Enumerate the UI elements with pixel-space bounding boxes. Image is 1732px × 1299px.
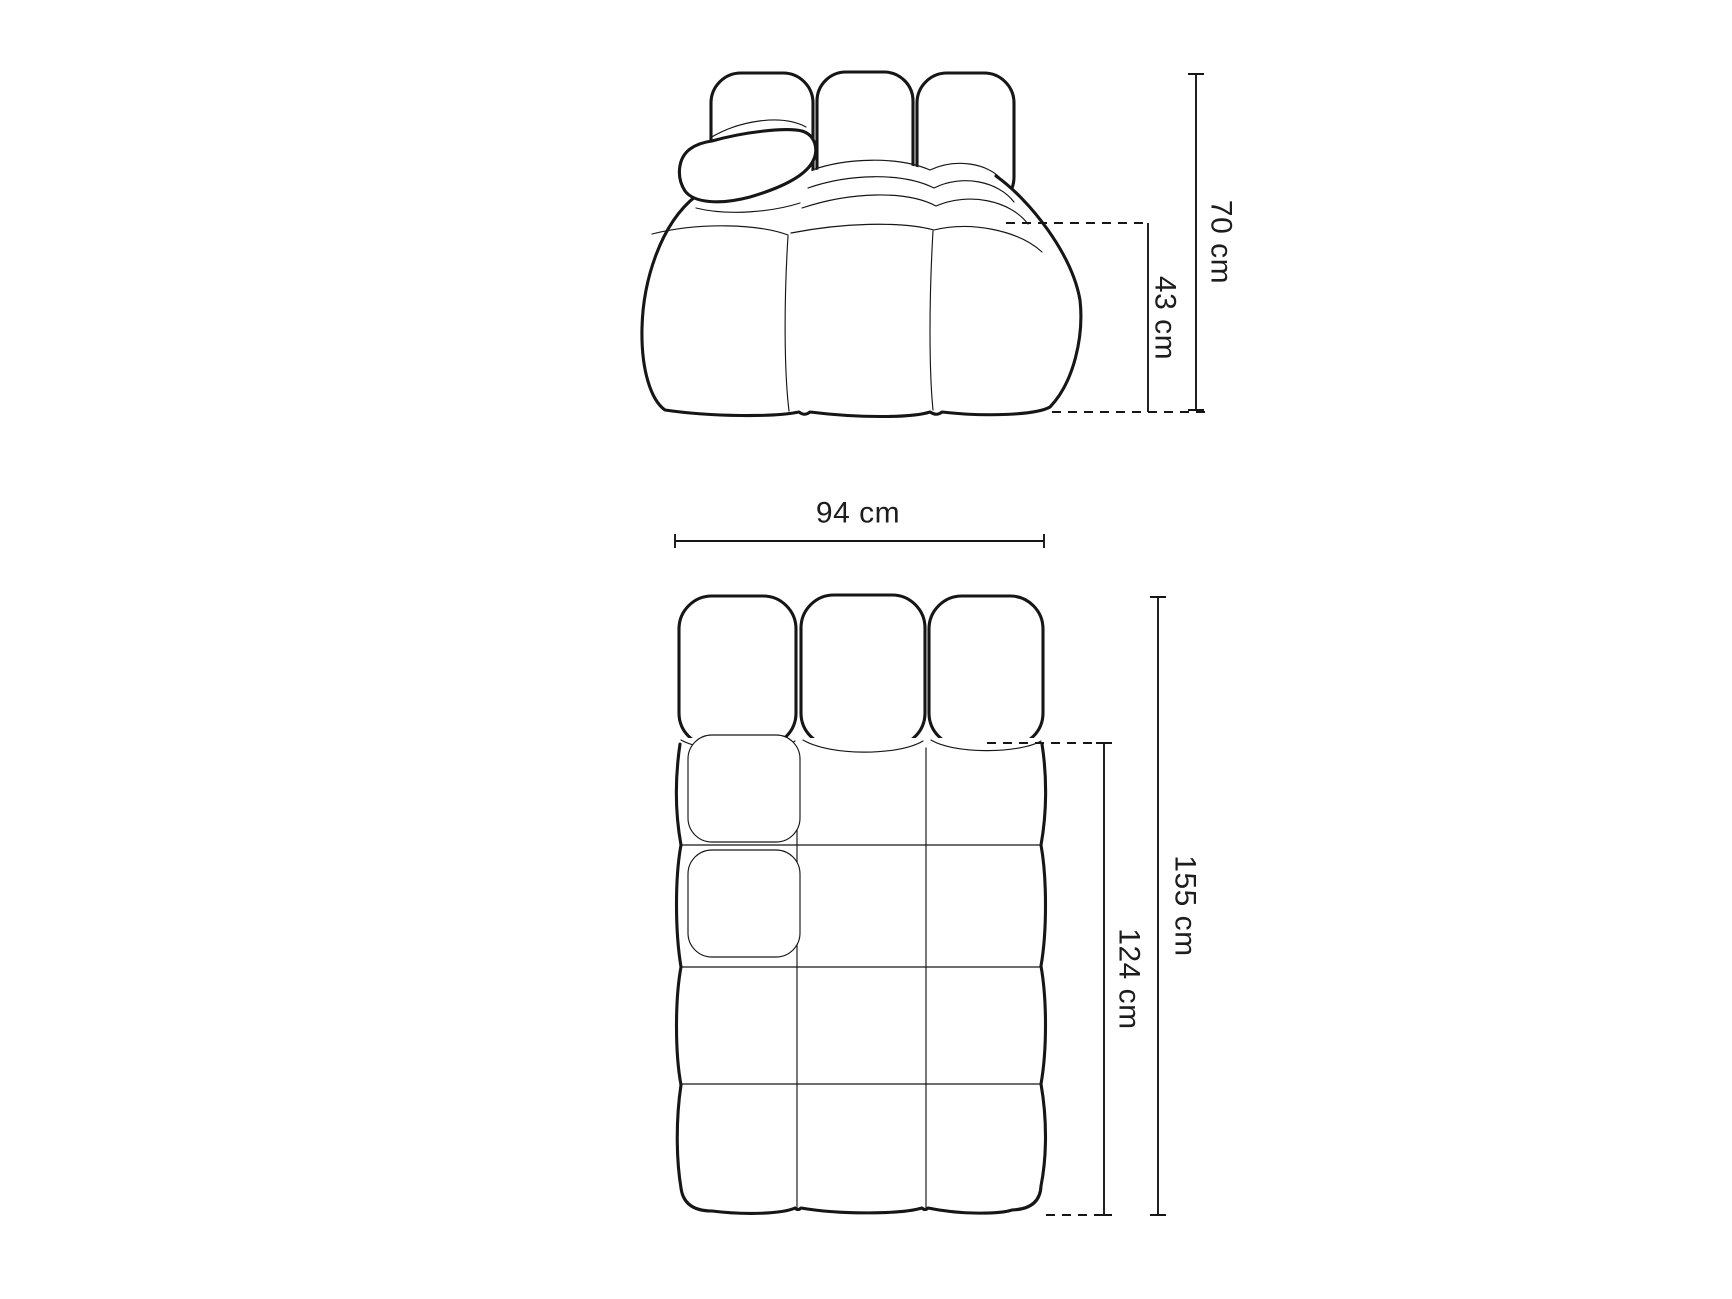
- sofa-front-view-drawing: [642, 72, 1081, 417]
- total-height-dimension-line: [1188, 74, 1204, 410]
- seat-depth-dimension-line: [1096, 743, 1112, 1215]
- dimension-label-total-height: 70 cm: [1205, 200, 1238, 284]
- dimension-label-seat-height: 43 cm: [1149, 276, 1182, 360]
- dimension-label-seat-depth: 124 cm: [1113, 928, 1146, 1029]
- top-armrest-cushion-2: [688, 850, 800, 957]
- top-backrest-cushion-right: [929, 596, 1043, 746]
- dimension-label-width: 94 cm: [816, 497, 900, 530]
- sofa-top-view-drawing: [676, 595, 1045, 1213]
- product-dimension-diagram: 70 cm 43 cm: [0, 0, 1732, 1299]
- top-armrest-cushion-1: [688, 735, 800, 842]
- top-backrest-cushion-middle: [801, 595, 925, 746]
- width-dimension-line: [675, 534, 1044, 548]
- dimension-label-total-depth: 155 cm: [1169, 855, 1202, 956]
- top-backrest-cushion-left: [679, 596, 796, 746]
- total-depth-dimension-line: [1150, 597, 1166, 1215]
- sofa-dimension-drawing: 70 cm 43 cm: [0, 0, 1732, 1299]
